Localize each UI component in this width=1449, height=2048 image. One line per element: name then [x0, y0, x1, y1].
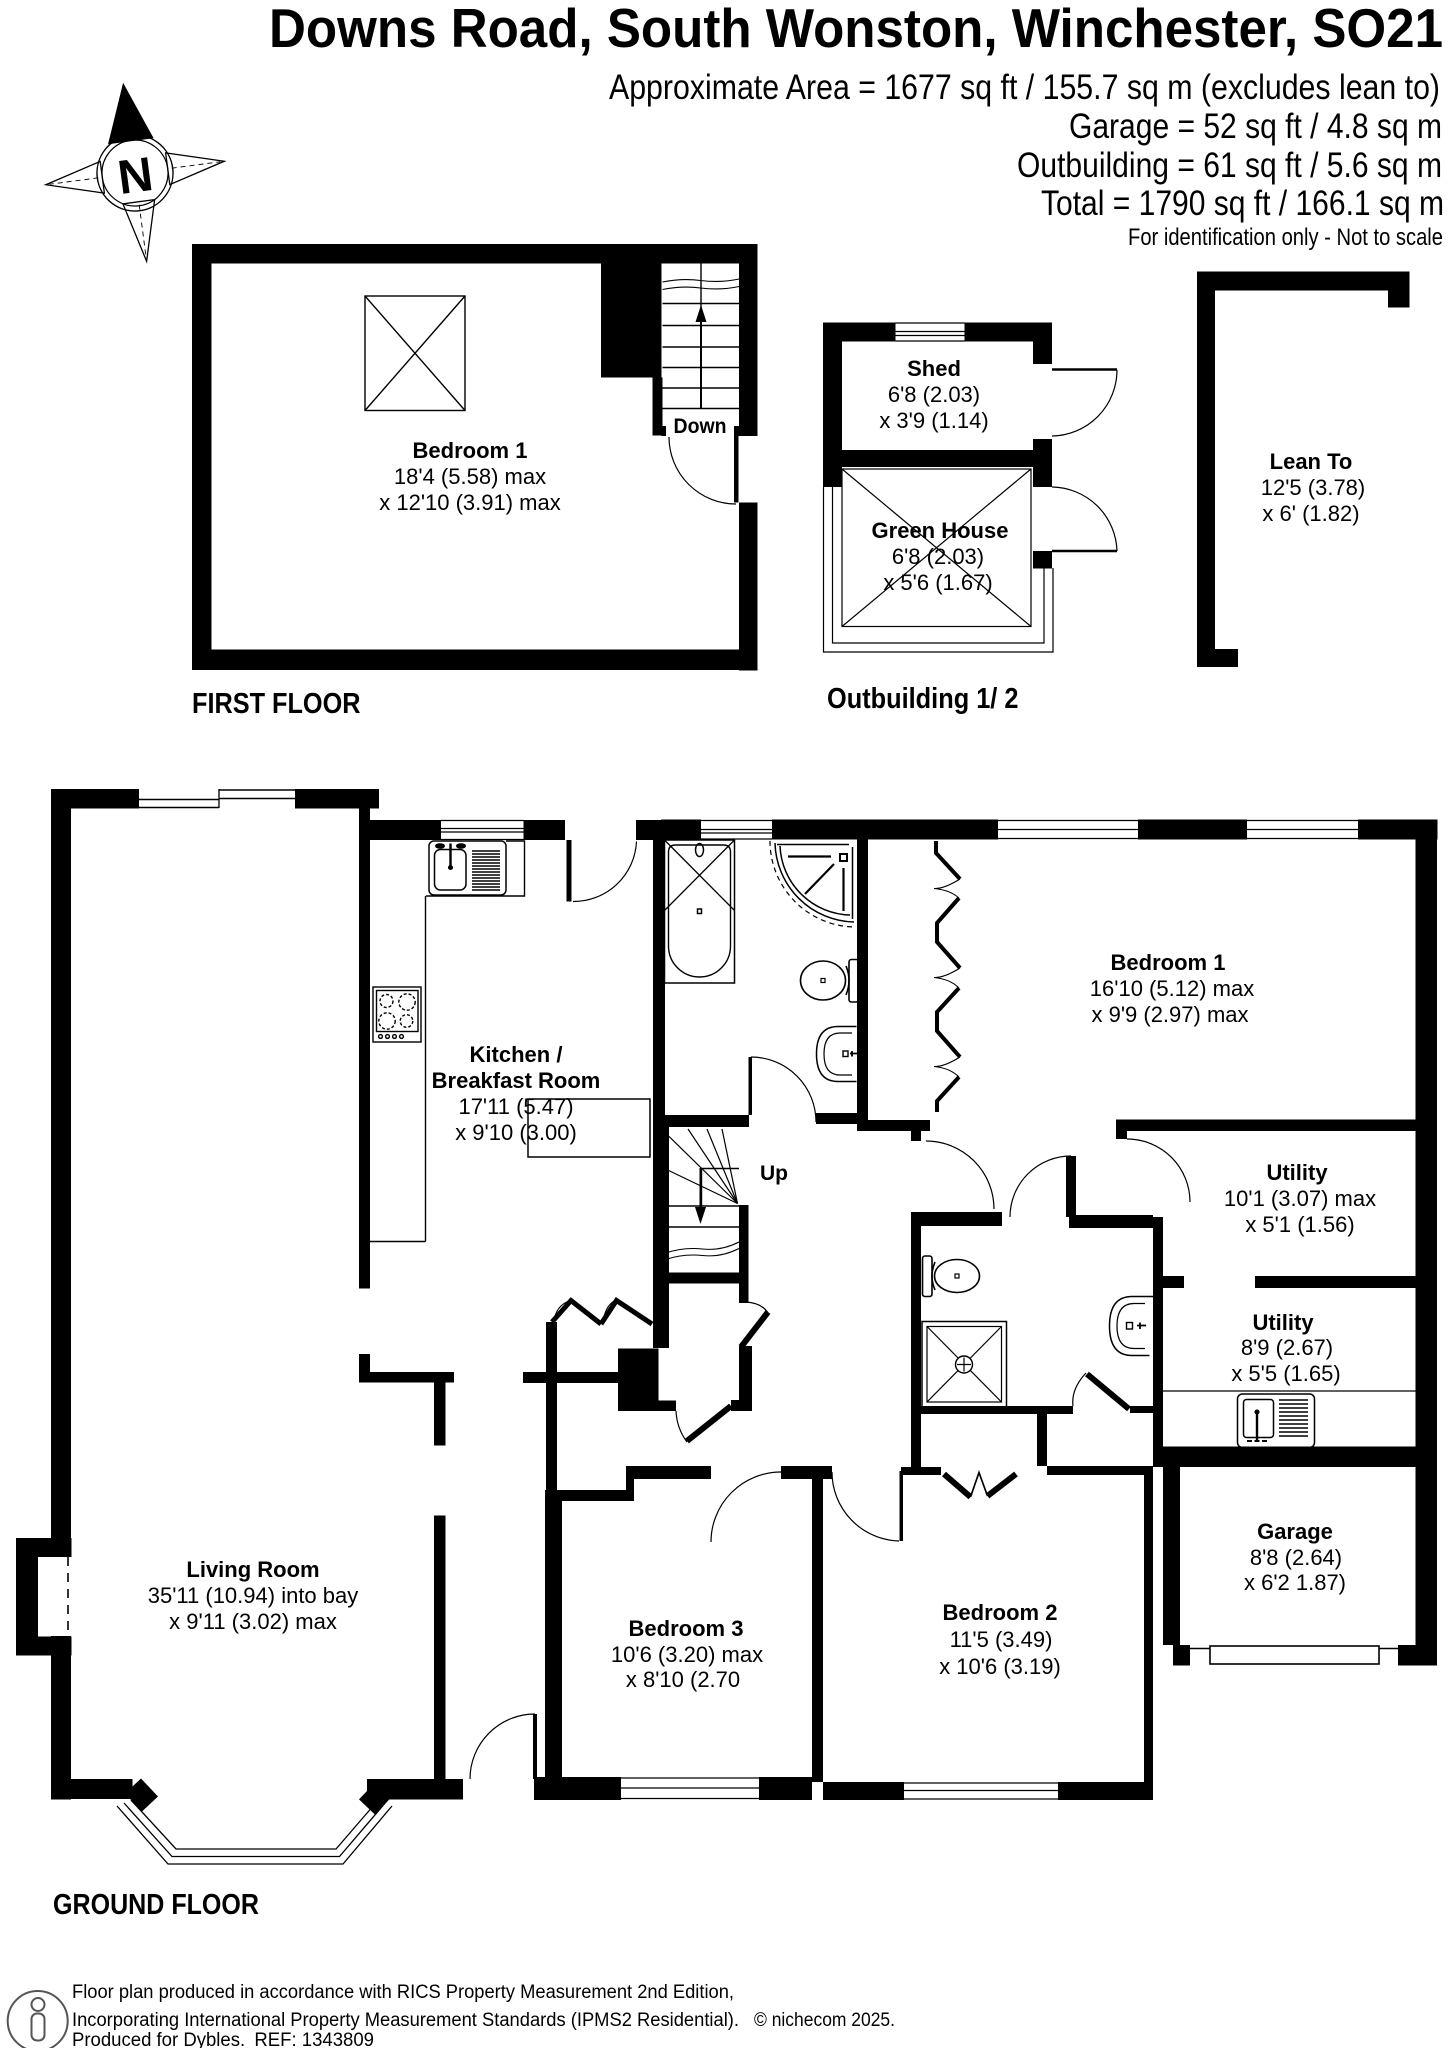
svg-text:x 6'2 1.87): x 6'2 1.87): [1244, 1570, 1346, 1595]
svg-text:Utility: Utility: [1252, 1310, 1314, 1335]
svg-text:FIRST FLOOR: FIRST FLOOR: [192, 688, 361, 720]
svg-text:x 5'1 (1.56): x 5'1 (1.56): [1245, 1212, 1354, 1237]
svg-text:Green House: Green House: [872, 518, 1009, 543]
svg-text:8'9 (2.67): 8'9 (2.67): [1241, 1335, 1333, 1360]
svg-text:10'1 (3.07) max: 10'1 (3.07) max: [1224, 1186, 1376, 1211]
svg-text:Produced for Dybles. REF: 1343: Produced for Dybles. REF: 1343809: [72, 2030, 374, 2048]
svg-text:Utility: Utility: [1266, 1160, 1328, 1185]
svg-text:Lean To: Lean To: [1270, 449, 1353, 474]
svg-text:Bedroom 1: Bedroom 1: [1111, 950, 1226, 975]
svg-text:17'11 (5.47): 17'11 (5.47): [458, 1094, 573, 1119]
svg-text:Bedroom 2: Bedroom 2: [943, 1600, 1058, 1625]
svg-text:For identification only - Not: For identification only - Not to scale: [1128, 224, 1443, 251]
svg-text:Garage: Garage: [1257, 1519, 1333, 1544]
svg-text:Up: Up: [760, 1162, 788, 1185]
svg-text:6'8 (2.03): 6'8 (2.03): [888, 382, 980, 407]
svg-text:x 9'11 (3.02) max: x 9'11 (3.02) max: [169, 1609, 337, 1634]
svg-text:Breakfast Room: Breakfast Room: [432, 1068, 601, 1093]
svg-text:© nichecom 2025.: © nichecom 2025.: [754, 2010, 895, 2031]
svg-text:16'10 (5.12) max: 16'10 (5.12) max: [1090, 976, 1254, 1001]
svg-text:12'5 (3.78): 12'5 (3.78): [1261, 475, 1366, 500]
svg-text:x 6' (1.82): x 6' (1.82): [1262, 501, 1359, 526]
svg-text:x 8'10 (2.70: x 8'10 (2.70: [626, 1667, 740, 1692]
svg-text:Incorporating International Pr: Incorporating International Property Mea…: [72, 2010, 739, 2031]
svg-text:6'8 (2.03): 6'8 (2.03): [892, 544, 984, 569]
svg-text:Living Room: Living Room: [186, 1557, 319, 1582]
svg-text:18'4 (5.58) max: 18'4 (5.58) max: [394, 464, 546, 489]
svg-text:Approximate Area = 1677 sq ft: Approximate Area = 1677 sq ft / 155.7 sq…: [609, 68, 1440, 107]
svg-text:Floor plan produced in accorda: Floor plan produced in accordance with R…: [72, 1982, 734, 2003]
svg-text:x 9'9 (2.97) max: x 9'9 (2.97) max: [1091, 1002, 1248, 1027]
svg-text:Bedroom 1: Bedroom 1: [413, 438, 528, 463]
svg-text:Garage = 52 sq ft / 4.8 sq m: Garage = 52 sq ft / 4.8 sq m: [1069, 107, 1442, 146]
svg-text:Kitchen /: Kitchen /: [470, 1042, 563, 1067]
svg-text:Shed: Shed: [907, 356, 961, 381]
svg-text:11'5 (3.49): 11'5 (3.49): [950, 1627, 1053, 1652]
svg-text:x 5'5 (1.65): x 5'5 (1.65): [1231, 1361, 1340, 1386]
svg-text:Outbuilding 1/ 2: Outbuilding 1/ 2: [827, 683, 1019, 715]
svg-text:x 12'10 (3.91) max: x 12'10 (3.91) max: [379, 490, 561, 515]
svg-text:Outbuilding = 61 sq ft / 5.6 s: Outbuilding = 61 sq ft / 5.6 sq m: [1017, 146, 1442, 185]
svg-text:Downs Road, South Wonston, Win: Downs Road, South Wonston, Winchester, S…: [269, 0, 1443, 59]
svg-text:GROUND FLOOR: GROUND FLOOR: [53, 1889, 259, 1921]
svg-text:x 9'10 (3.00): x 9'10 (3.00): [455, 1120, 577, 1145]
svg-text:Down: Down: [674, 415, 727, 438]
svg-text:x 10'6 (3.19): x 10'6 (3.19): [939, 1654, 1061, 1679]
svg-text:Bedroom 3: Bedroom 3: [629, 1616, 744, 1641]
svg-text:x 3'9 (1.14): x 3'9 (1.14): [879, 408, 988, 433]
svg-text:Total = 1790 sq ft / 166.1 sq: Total = 1790 sq ft / 166.1 sq m: [1041, 184, 1444, 223]
svg-text:10'6 (3.20) max: 10'6 (3.20) max: [611, 1642, 763, 1667]
svg-text:N: N: [115, 148, 156, 205]
svg-text:8'8 (2.64): 8'8 (2.64): [1250, 1545, 1342, 1570]
svg-text:35'11 (10.94) into bay: 35'11 (10.94) into bay: [148, 1583, 359, 1608]
svg-text:x 5'6 (1.67): x 5'6 (1.67): [883, 570, 992, 595]
